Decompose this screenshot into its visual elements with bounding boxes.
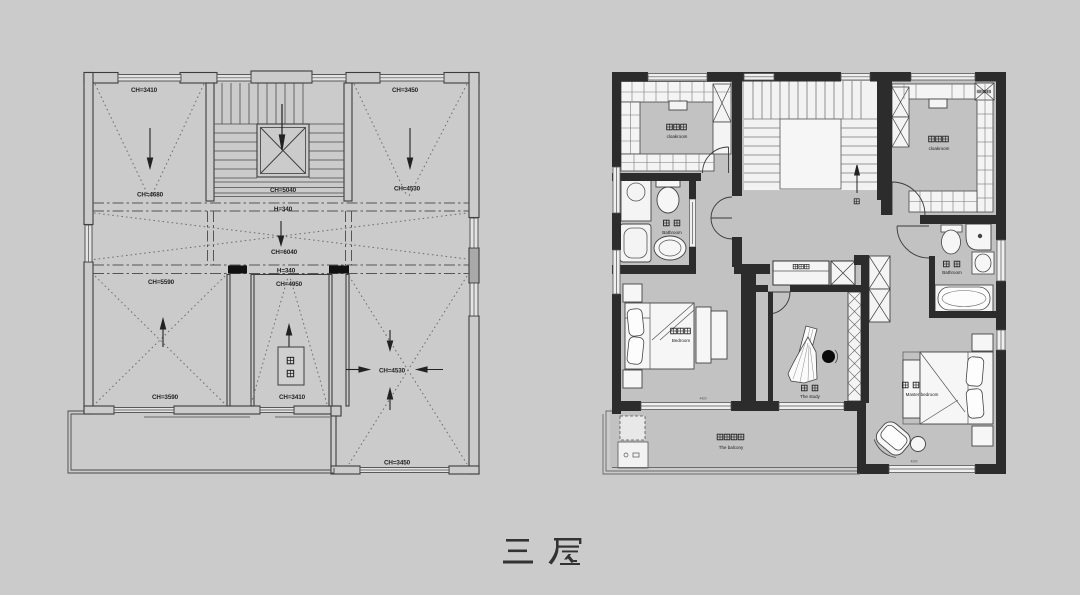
svg-text:Bathroom: Bathroom [942, 270, 962, 275]
svg-text:CH=6040: CH=6040 [271, 249, 298, 256]
svg-text:cloakroom: cloakroom [667, 134, 688, 139]
svg-text:CH=3450: CH=3450 [392, 87, 419, 94]
svg-text:CH=4530: CH=4530 [379, 368, 406, 375]
svg-text:CH=5590: CH=5590 [148, 279, 175, 286]
svg-text:CH=4680: CH=4680 [137, 192, 164, 199]
svg-text:4200: 4200 [910, 460, 917, 464]
svg-text:Master bedroom: Master bedroom [906, 392, 939, 397]
svg-text:The balcony: The balcony [719, 445, 744, 450]
svg-text:H=340: H=340 [277, 268, 296, 275]
svg-text:CH=3450: CH=3450 [384, 460, 411, 467]
svg-text:CH=4950: CH=4950 [276, 281, 303, 288]
svg-text:Bedroom: Bedroom [672, 338, 691, 343]
svg-text:cloakroom: cloakroom [929, 146, 950, 151]
svg-text:CH=3410: CH=3410 [279, 394, 306, 401]
svg-text:Bathroom: Bathroom [662, 230, 682, 235]
svg-text:The study: The study [800, 394, 821, 399]
svg-text:CH=4530: CH=4530 [394, 186, 421, 193]
svg-text:CH=5040: CH=5040 [270, 187, 297, 194]
svg-text:4420: 4420 [699, 397, 706, 401]
svg-text:CH=3410: CH=3410 [131, 87, 158, 94]
svg-text:CH=3590: CH=3590 [152, 394, 179, 401]
svg-text:H=340: H=340 [274, 206, 293, 213]
